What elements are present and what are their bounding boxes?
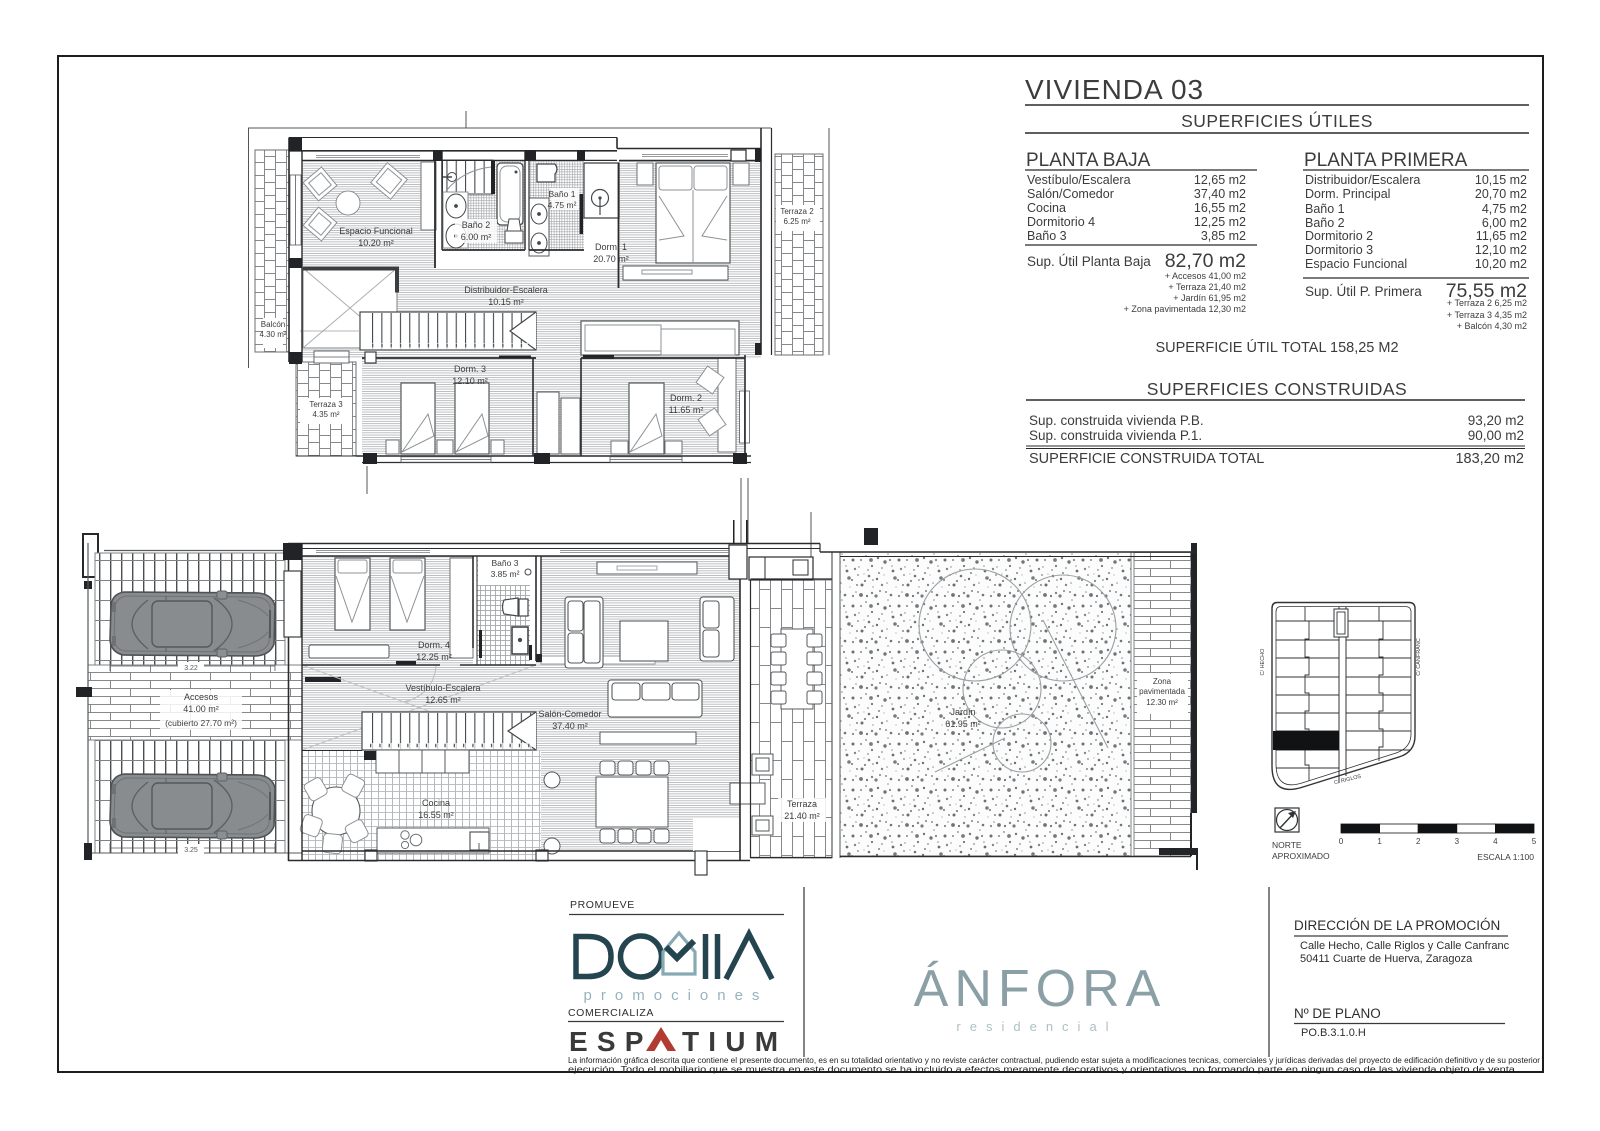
svg-text:Baño 1: Baño 1 [549,189,576,199]
svg-text:10.20 m²: 10.20 m² [358,238,394,248]
svg-text:10,15 m2: 10,15 m2 [1475,173,1527,187]
svg-text:Sup. construida vivienda P.B.: Sup. construida vivienda P.B. [1029,413,1204,428]
svg-text:Baño 2: Baño 2 [1305,216,1345,230]
svg-text:12.30 m²: 12.30 m² [1146,698,1178,707]
svg-text:2: 2 [1416,837,1421,846]
svg-text:NORTE: NORTE [1272,840,1302,850]
svg-text:SUPERFICIE ÚTIL TOTAL 158,25 M: SUPERFICIE ÚTIL TOTAL 158,25 M2 [1155,339,1398,356]
svg-text:37.40 m²: 37.40 m² [552,721,588,731]
svg-text:residencial: residencial [956,1019,1117,1034]
svg-text:PROMUEVE: PROMUEVE [570,899,635,911]
svg-text:21.40 m²: 21.40 m² [784,811,820,821]
svg-text:Sup. Útil Planta Baja: Sup. Útil Planta Baja [1027,254,1151,269]
svg-text:11.65 m²: 11.65 m² [669,405,704,415]
svg-text:Espacio Funcional: Espacio Funcional [1305,257,1407,271]
svg-text:16.55 m²: 16.55 m² [418,810,454,820]
svg-text:+ Terraza 3 4,35 m2: + Terraza 3 4,35 m2 [1447,310,1527,320]
svg-text:Vestíbulo-Escalera: Vestíbulo-Escalera [405,683,480,693]
svg-text:90,00 m2: 90,00 m2 [1468,428,1524,443]
svg-text:6.25 m²: 6.25 m² [783,217,810,226]
svg-text:(cubierto 27.70 m²): (cubierto 27.70 m²) [165,718,237,728]
svg-text:3,85 m2: 3,85 m2 [1201,229,1246,243]
svg-text:ESCALA 1:100: ESCALA 1:100 [1477,852,1534,862]
svg-text:6,00 m2: 6,00 m2 [1482,216,1527,230]
svg-text:Vestíbulo/Escalera: Vestíbulo/Escalera [1027,173,1131,187]
svg-text:12,65 m2: 12,65 m2 [1194,173,1246,187]
svg-text:61.95 m²: 61.95 m² [945,719,981,729]
svg-text:Distribuidor-Escalera: Distribuidor-Escalera [464,285,548,295]
svg-text:+ Zona pavimentada 12,30 m2: + Zona pavimentada 12,30 m2 [1124,304,1246,314]
svg-text:3.25: 3.25 [184,847,198,854]
svg-text:SUPERFICIES ÚTILES: SUPERFICIES ÚTILES [1181,110,1373,131]
svg-text:12.65 m²: 12.65 m² [425,695,461,705]
svg-text:Baño 1: Baño 1 [1305,202,1345,216]
svg-text:SUPERFICIES CONSTRUIDAS: SUPERFICIES CONSTRUIDAS [1147,379,1407,399]
svg-text:4.75 m²: 4.75 m² [548,200,577,210]
svg-text:3: 3 [1455,837,1460,846]
svg-text:Accesos: Accesos [184,692,219,702]
svg-text:10.15 m²: 10.15 m² [488,297,524,307]
svg-text:Dorm. 1: Dorm. 1 [595,242,627,252]
svg-text:Dorm. 4: Dorm. 4 [418,640,450,650]
svg-text:Balcón: Balcón [261,320,285,329]
svg-text:pavimentada: pavimentada [1139,687,1185,696]
svg-text:3.22: 3.22 [184,665,198,672]
svg-text:183,20 m2: 183,20 m2 [1455,451,1524,467]
svg-text:+ Accesos 41,00 m2: + Accesos 41,00 m2 [1165,271,1246,281]
svg-text:APROXIMADO: APROXIMADO [1272,851,1330,861]
svg-text:6.00 m²: 6.00 m² [461,232,492,242]
svg-text:Baño 2: Baño 2 [462,220,491,230]
svg-text:TIUM: TIUM [682,1026,787,1057]
svg-text:41.00 m²: 41.00 m² [183,704,219,714]
svg-text:Baño 3: Baño 3 [1027,229,1067,243]
svg-text:12.25 m²: 12.25 m² [416,652,452,662]
svg-text:1: 1 [1377,837,1382,846]
svg-text:Distribuidor/Escalera: Distribuidor/Escalera [1305,173,1420,187]
svg-text:Zona: Zona [1153,677,1172,686]
svg-text:PLANTA PRIMERA: PLANTA PRIMERA [1304,150,1468,171]
svg-text:Sup. Útil P. Primera: Sup. Útil P. Primera [1305,284,1422,299]
svg-text:promociones: promociones [584,987,769,1004]
svg-text:20,70 m2: 20,70 m2 [1475,187,1527,201]
svg-text:DIRECCIÓN DE LA PROMOCIÓN: DIRECCIÓN DE LA PROMOCIÓN [1294,918,1500,933]
svg-text:PLANTA BAJA: PLANTA BAJA [1026,150,1151,171]
svg-text:93,20 m2: 93,20 m2 [1468,413,1524,428]
svg-text:Nº DE PLANO: Nº DE PLANO [1294,1006,1381,1021]
svg-text:+ Terraza 2 6,25 m2: + Terraza 2 6,25 m2 [1447,298,1527,308]
svg-text:ÁNFORA: ÁNFORA [914,960,1167,1018]
svg-text:82,70 m2: 82,70 m2 [1165,250,1246,272]
svg-text:COMERCIALIZA: COMERCIALIZA [568,1007,654,1019]
svg-text:Terraza 3: Terraza 3 [309,400,343,409]
svg-text:Terraza: Terraza [787,799,817,809]
svg-text:Dormitorio 3: Dormitorio 3 [1305,243,1373,257]
svg-text:+ Balcón 4,30 m2: + Balcón 4,30 m2 [1457,321,1527,331]
svg-text:C/ CANFRANC: C/ CANFRANC [1416,638,1422,676]
svg-text:Cocina: Cocina [1027,201,1066,215]
svg-text:Cocina: Cocina [422,798,450,808]
svg-text:20.70 m²: 20.70 m² [593,254,629,264]
svg-text:Dorm. 3: Dorm. 3 [454,364,486,374]
svg-text:Jardín: Jardín [950,707,975,717]
svg-text:4,75 m2: 4,75 m2 [1482,202,1527,216]
svg-text:Dormitorio 4: Dormitorio 4 [1027,215,1095,229]
svg-text:Salón/Comedor: Salón/Comedor [1027,187,1114,201]
svg-text:37,40 m2: 37,40 m2 [1194,187,1246,201]
svg-text:Salón-Comedor: Salón-Comedor [538,709,601,719]
svg-text:SUPERFICIE CONSTRUIDA TOTAL: SUPERFICIE CONSTRUIDA TOTAL [1029,451,1264,467]
svg-text:Calle Hecho, Calle Riglos y Ca: Calle Hecho, Calle Riglos y Calle Canfra… [1300,940,1510,952]
svg-text:VIVIENDA 03: VIVIENDA 03 [1025,74,1204,105]
svg-text:12.10 m²: 12.10 m² [452,376,488,386]
svg-text:50411 Cuarte de Huerva, Zarago: 50411 Cuarte de Huerva, Zaragoza [1300,953,1473,965]
svg-text:Dorm. 2: Dorm. 2 [670,393,702,403]
svg-text:0: 0 [1339,837,1344,846]
svg-text:5: 5 [1532,837,1537,846]
svg-text:4.30 m²: 4.30 m² [259,330,286,339]
svg-text:Terraza 2: Terraza 2 [780,207,814,216]
svg-text:+ Terraza 21,40 m2: + Terraza 21,40 m2 [1168,282,1246,292]
svg-text:PO.B.3.1.0.H: PO.B.3.1.0.H [1301,1027,1366,1039]
svg-text:Baño 3: Baño 3 [492,558,519,568]
svg-text:4.35 m²: 4.35 m² [312,410,339,419]
svg-text:12,10 m2: 12,10 m2 [1475,243,1527,257]
svg-text:+ Jardín 61,95 m2: + Jardín 61,95 m2 [1173,293,1246,303]
svg-text:Sup. construida vivienda P.1.: Sup. construida vivienda P.1. [1029,428,1202,443]
svg-text:10,20 m2: 10,20 m2 [1475,257,1527,271]
svg-text:La información gráfica descrit: La información gráfica descrita que cont… [568,1056,1540,1065]
svg-text:11,65 m2: 11,65 m2 [1476,229,1527,243]
svg-text:C/ HECHO: C/ HECHO [1260,648,1266,676]
svg-text:Dormitorio 2: Dormitorio 2 [1305,229,1373,243]
svg-text:ejecución. Todo el mobiliario: ejecución. Todo el mobiliario que se mue… [568,1065,1518,1074]
svg-text:4: 4 [1493,837,1498,846]
svg-text:3.85 m²: 3.85 m² [491,569,520,579]
svg-text:Espacio Funcional: Espacio Funcional [339,226,413,236]
svg-text:12,25 m2: 12,25 m2 [1194,215,1246,229]
svg-text:16,55 m2: 16,55 m2 [1194,201,1246,215]
svg-text:ESP: ESP [569,1026,653,1057]
svg-text:Dorm. Principal: Dorm. Principal [1305,187,1390,201]
